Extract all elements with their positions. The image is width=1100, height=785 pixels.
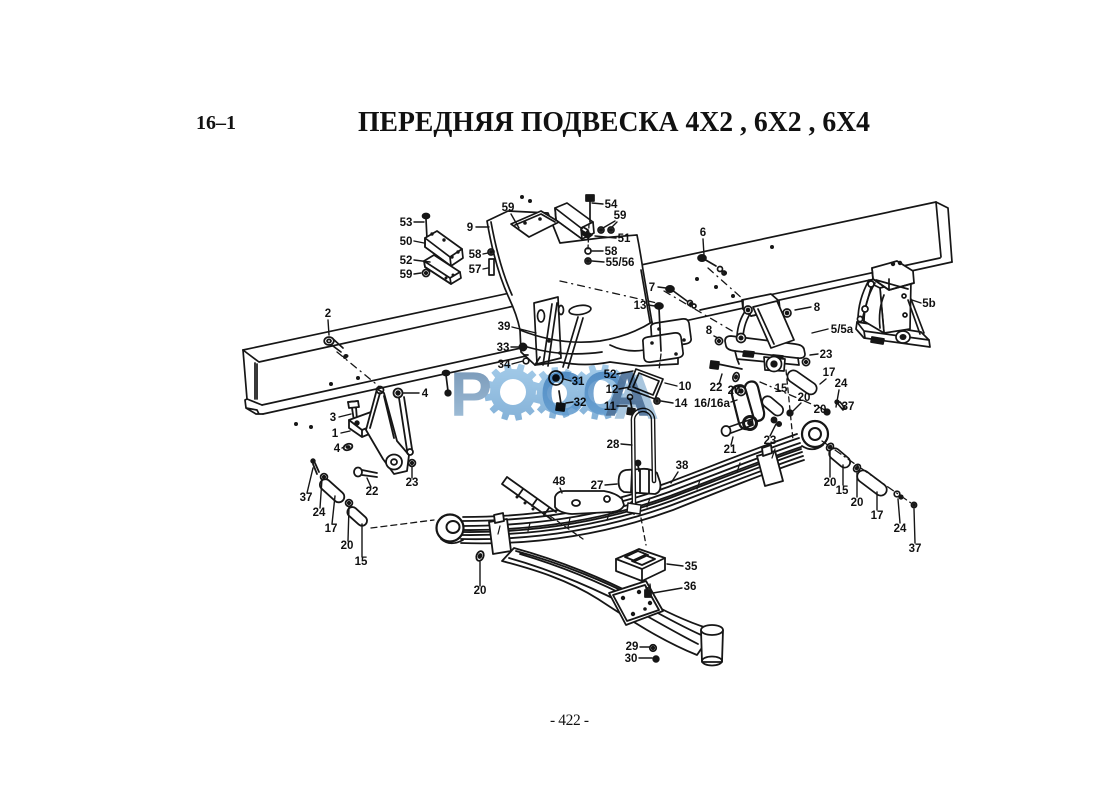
svg-text:- 422 -: - 422 - — [550, 712, 589, 729]
svg-text:15: 15 — [775, 383, 788, 395]
svg-text:37: 37 — [300, 492, 313, 504]
svg-text:20: 20 — [824, 477, 837, 489]
svg-text:16–1: 16–1 — [196, 112, 236, 134]
svg-text:21: 21 — [724, 444, 737, 456]
svg-text:4: 4 — [334, 443, 341, 455]
svg-text:20: 20 — [728, 385, 741, 397]
svg-text:27: 27 — [591, 480, 604, 492]
svg-text:14: 14 — [675, 398, 688, 410]
svg-text:24: 24 — [894, 523, 907, 535]
svg-text:35: 35 — [685, 561, 698, 573]
svg-text:6: 6 — [700, 227, 706, 239]
svg-text:50: 50 — [400, 236, 413, 248]
svg-text:55/56: 55/56 — [606, 257, 635, 269]
svg-text:ПЕРЕДНЯЯ ПОДВЕСКА 4X2 , 6X2: ПЕРЕДНЯЯ ПОДВЕСКА 4X2 , 6X2 , 6X4 — [358, 107, 870, 138]
svg-text:57: 57 — [469, 264, 482, 276]
svg-text:А: А — [604, 358, 650, 430]
svg-text:23: 23 — [406, 477, 419, 489]
svg-text:30: 30 — [625, 653, 638, 665]
svg-text:37: 37 — [909, 543, 922, 555]
svg-text:48: 48 — [553, 476, 566, 488]
svg-text:20: 20 — [851, 497, 864, 509]
svg-text:28: 28 — [607, 439, 620, 451]
svg-text:20: 20 — [474, 585, 487, 597]
svg-text:51: 51 — [618, 233, 631, 245]
svg-text:3: 3 — [330, 412, 336, 424]
svg-text:33: 33 — [497, 342, 510, 354]
svg-text:1: 1 — [332, 428, 339, 440]
svg-text:17: 17 — [823, 367, 836, 379]
svg-text:52: 52 — [400, 255, 413, 267]
svg-text:8: 8 — [706, 325, 713, 337]
svg-text:16/16a: 16/16a — [694, 398, 731, 410]
svg-text:38: 38 — [676, 460, 689, 472]
svg-text:8: 8 — [814, 302, 821, 314]
svg-text:4: 4 — [422, 388, 429, 400]
svg-text:10: 10 — [679, 381, 692, 393]
svg-text:53: 53 — [400, 217, 413, 229]
svg-text:5b: 5b — [922, 298, 935, 310]
svg-text:2: 2 — [325, 308, 331, 320]
svg-text:17: 17 — [871, 510, 884, 522]
svg-text:22: 22 — [366, 486, 379, 498]
svg-text:15: 15 — [355, 556, 368, 568]
svg-text:29: 29 — [626, 641, 639, 653]
svg-text:7: 7 — [649, 282, 655, 294]
svg-text:24: 24 — [835, 378, 848, 390]
svg-text:58: 58 — [469, 249, 482, 261]
svg-text:С: С — [540, 360, 585, 429]
svg-text:Р: Р — [450, 360, 492, 430]
svg-text:59: 59 — [614, 210, 627, 222]
svg-text:13: 13 — [634, 300, 647, 312]
svg-text:22: 22 — [710, 382, 723, 394]
svg-text:9: 9 — [467, 222, 473, 234]
svg-text:39: 39 — [498, 321, 511, 333]
svg-text:59: 59 — [502, 202, 515, 214]
svg-text:15: 15 — [836, 485, 849, 497]
svg-text:23: 23 — [764, 435, 777, 447]
svg-text:17: 17 — [325, 523, 338, 535]
svg-text:23: 23 — [820, 349, 833, 361]
svg-text:24: 24 — [313, 507, 326, 519]
svg-text:20: 20 — [341, 540, 354, 552]
svg-text:36: 36 — [684, 581, 697, 593]
svg-text:59: 59 — [400, 269, 413, 281]
svg-text:20: 20 — [798, 392, 811, 404]
svg-text:5/5a: 5/5a — [831, 324, 854, 336]
svg-text:20: 20 — [814, 404, 827, 416]
